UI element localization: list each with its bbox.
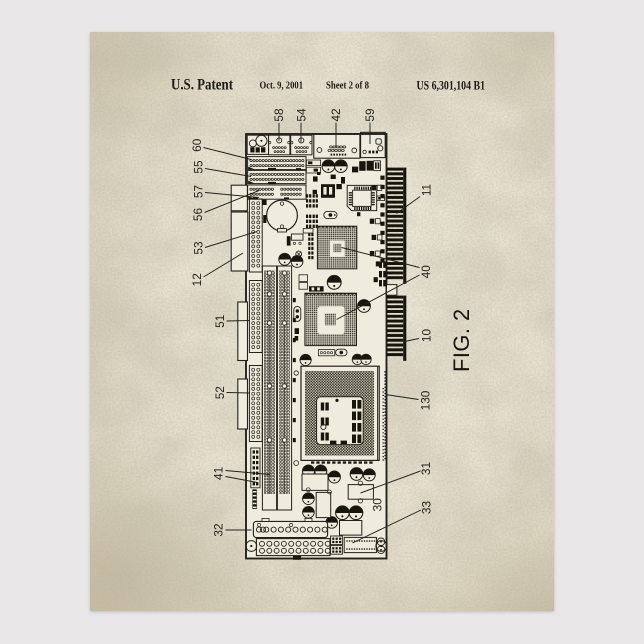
- svg-text:42: 42: [329, 108, 343, 121]
- svg-text:U.S. Patent: U.S. Patent: [171, 77, 234, 94]
- svg-text:Sheet 2 of 8: Sheet 2 of 8: [326, 81, 369, 92]
- svg-text:56: 56: [191, 208, 205, 222]
- svg-text:11: 11: [419, 184, 433, 196]
- svg-text:57: 57: [192, 185, 206, 198]
- svg-text:10: 10: [419, 329, 433, 343]
- svg-text:59: 59: [363, 108, 377, 121]
- svg-text:FIG. 2: FIG. 2: [449, 308, 474, 372]
- svg-text:12: 12: [190, 273, 204, 286]
- svg-text:Oct. 9, 2001: Oct. 9, 2001: [260, 81, 304, 92]
- svg-text:130: 130: [419, 390, 433, 410]
- svg-text:53: 53: [192, 241, 206, 255]
- svg-text:60: 60: [190, 138, 204, 152]
- svg-text:32: 32: [212, 523, 226, 536]
- svg-text:US 6,301,104 B1: US 6,301,104 B1: [417, 78, 486, 93]
- svg-text:31: 31: [419, 462, 433, 475]
- svg-text:51: 51: [213, 315, 227, 328]
- svg-text:54: 54: [294, 108, 308, 122]
- svg-text:52: 52: [213, 386, 227, 399]
- svg-text:30: 30: [370, 498, 384, 512]
- svg-text:55: 55: [192, 160, 206, 174]
- svg-text:33: 33: [420, 501, 434, 515]
- svg-text:40: 40: [419, 265, 433, 279]
- svg-text:58: 58: [272, 108, 286, 122]
- svg-text:41: 41: [212, 467, 226, 480]
